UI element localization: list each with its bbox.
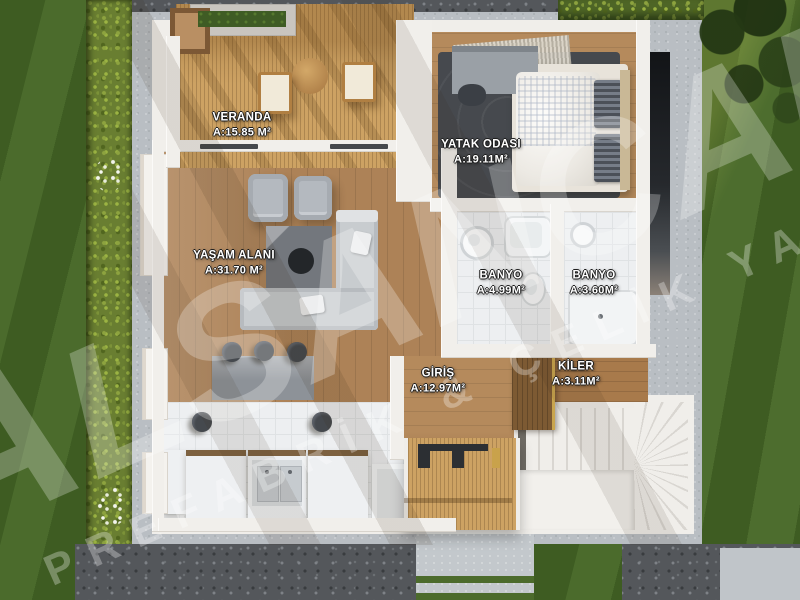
patio-chair [342,62,376,102]
room-label-bath1: BANYO A:4.99M² [477,268,525,297]
wall [636,20,650,350]
deck-step-shadow [404,498,512,503]
room-name: VERANDA [213,110,272,125]
concrete-patch [720,548,800,600]
tree-canopy [688,0,800,140]
armchair [248,174,288,222]
shower-tub [568,290,638,346]
room-label-bedroom: YATAK ODASI A:19.11M² [441,137,521,166]
room-name: YAŞAM ALANI [193,248,275,263]
room-name: KİLER [552,359,600,374]
bed-sheet-pattern [518,76,596,146]
planter-grass [198,11,286,27]
dark-side-wall [648,52,670,295]
toilet-seat [525,279,537,295]
flower-cluster [94,158,124,192]
sofa-armrest [336,210,378,222]
kitchen-counter [186,450,246,518]
grass-patch [534,544,622,600]
hedge-top [558,0,704,20]
stair-winder [634,402,688,530]
drain [598,314,603,319]
bed-headboard [620,70,630,190]
room-area: A:3.60M² [570,283,618,297]
room-area: A:31.70 M² [193,263,275,277]
room-label-living: YAŞAM ALANI A:31.70 M² [193,248,275,277]
faucet [288,470,292,474]
room-area: A:12.97M² [411,381,466,395]
wall [166,36,180,168]
lawn-left [0,0,90,600]
patio-table [292,58,328,94]
dining-stool [287,342,307,362]
room-area: A:19.11M² [441,152,521,166]
room-name: YATAK ODASI [441,137,521,152]
wall [430,198,650,212]
dining-stool [192,412,212,432]
wall [390,356,404,460]
wood-closet-panel [512,348,555,430]
wall [158,518,456,532]
walkway-grass-joint [416,593,534,600]
dining-stool [222,342,242,362]
room-area: A:15.85 M² [213,125,272,139]
deck-step-rail [452,451,464,468]
room-name: BANYO [477,268,525,283]
room-label-veranda: VERANDA A:15.85 M² [213,110,272,139]
bed-pillow [594,134,622,182]
desk-chair [458,84,486,106]
throw-pillow [299,294,325,315]
room-area: A:3.11M² [552,374,600,388]
room-label-entry: GİRİŞ A:12.97M² [411,366,466,395]
armchair [294,176,332,220]
wall [441,148,457,358]
hedge-left [86,0,132,556]
wall [550,204,564,348]
dining-stool [254,341,274,361]
bed-pillow [594,80,622,128]
room-label-pantry: KİLER A:3.11M² [552,359,600,388]
faucet [265,470,269,474]
sink-bowl [468,234,480,246]
bathroom-sink [570,222,596,248]
deck-step-rail [418,444,488,451]
dining-table [212,356,314,400]
sliding-door-frame [330,144,388,149]
sliding-door-frame [200,144,258,149]
stair-landing [518,470,634,530]
room-name: BANYO [570,268,618,283]
walkway-grass-joint [416,576,534,583]
flower-cluster [96,486,128,526]
deck-trim [492,448,500,468]
coffee-table-bowl [288,248,314,274]
room-label-bath2: BANYO A:3.60M² [570,268,618,297]
floorplan-render: ALSANCAK PREFABRİK & ÇELİK YAPI VERANDA … [0,0,800,600]
deck-step-rail [418,451,430,468]
wall [152,140,164,532]
room-name: GİRİŞ [411,366,466,381]
room-area: A:4.99M² [477,283,525,297]
wall [396,20,432,202]
wall [441,344,656,358]
kitchen-counter [308,450,368,518]
bathtub-basin [510,222,542,248]
patio-chair [258,72,292,114]
dining-stool [312,412,332,432]
